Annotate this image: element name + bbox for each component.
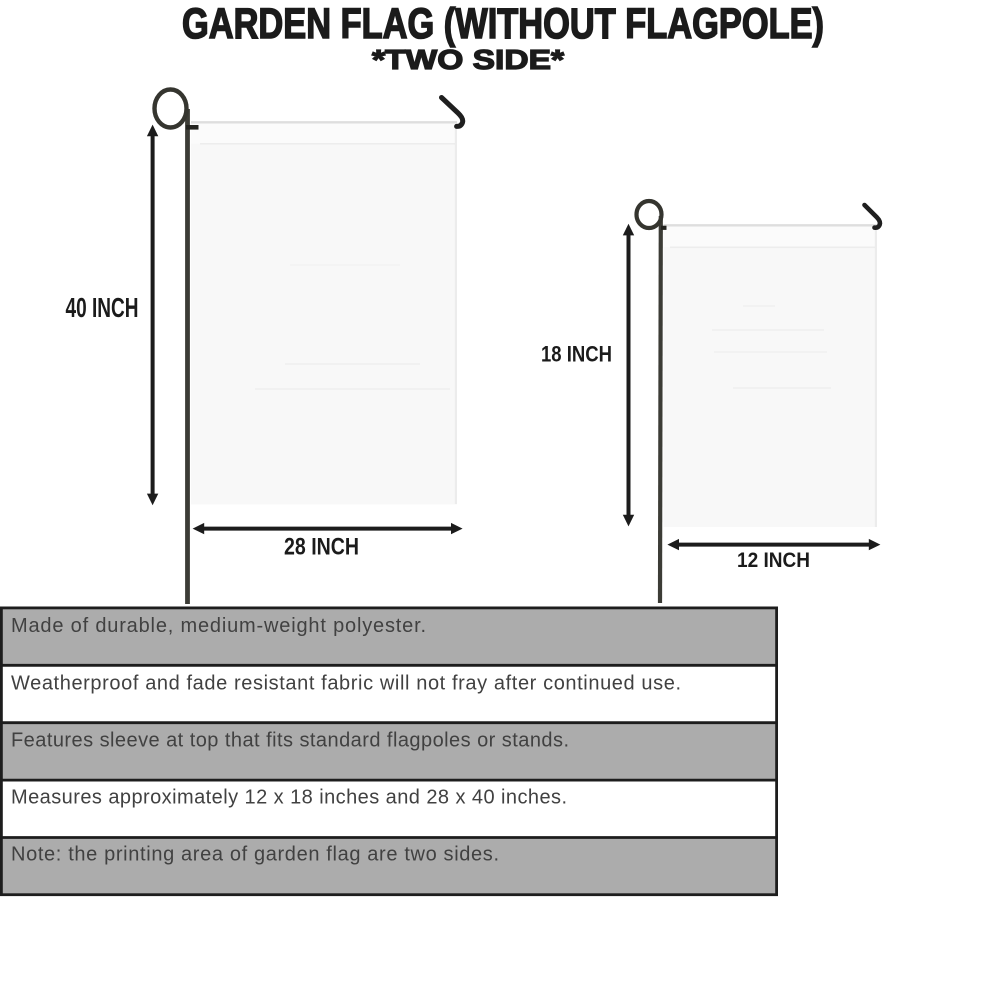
- svg-text:Features sleeve at top that fi: Features sleeve at top that fits standar…: [11, 730, 569, 752]
- svg-text:Made of durable, medium-weight: Made of durable, medium-weight polyester…: [11, 615, 426, 637]
- svg-text:12 INCH: 12 INCH: [737, 548, 810, 572]
- svg-text:Weatherproof and fade resistan: Weatherproof and fade resistant fabric w…: [11, 673, 681, 695]
- svg-text:*TWO SIDE*: *TWO SIDE*: [372, 44, 564, 75]
- svg-text:Note: the printing area of gar: Note: the printing area of garden flag a…: [11, 844, 499, 866]
- svg-text:28 INCH: 28 INCH: [284, 534, 359, 561]
- svg-text:Measures approximately 12 x 18: Measures approximately 12 x 18 inches an…: [11, 787, 567, 809]
- svg-text:GARDEN FLAG (WITHOUT FLAGPOLE): GARDEN FLAG (WITHOUT FLAGPOLE): [182, 0, 824, 48]
- svg-text:40 INCH: 40 INCH: [66, 292, 139, 323]
- svg-text:18 INCH: 18 INCH: [541, 342, 612, 367]
